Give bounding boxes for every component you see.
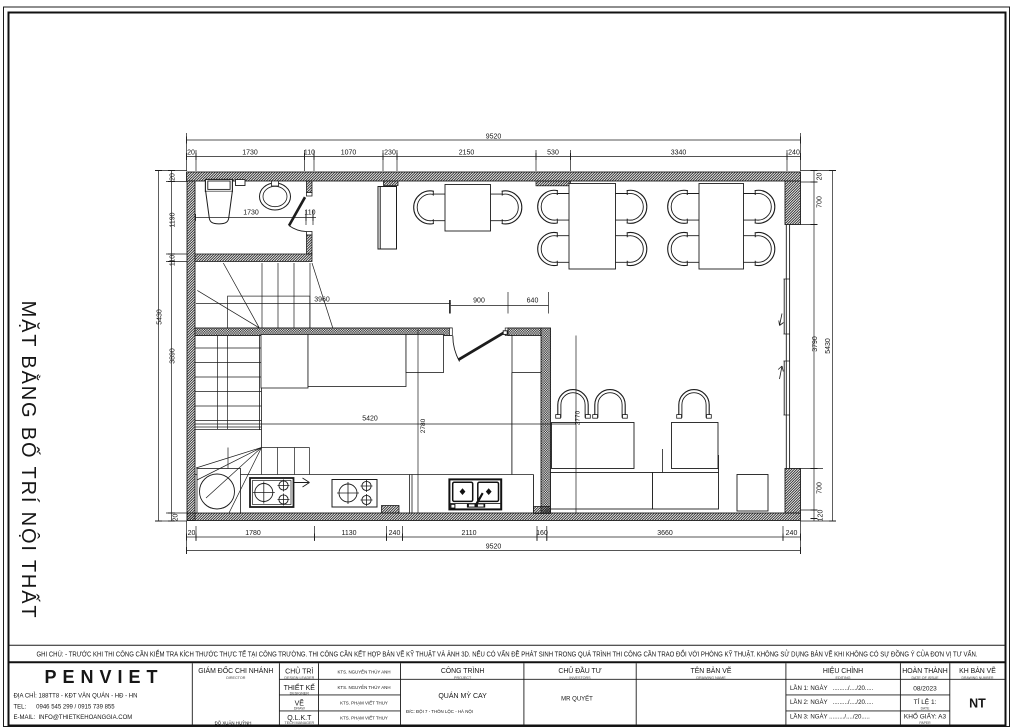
svg-text:160: 160 [536, 530, 548, 537]
svg-text:EDITING: EDITING [836, 676, 851, 680]
svg-text:DATE OF ISSUE: DATE OF ISSUE [911, 676, 939, 680]
svg-text:20: 20 [170, 173, 177, 181]
svg-text:20: 20 [817, 173, 824, 181]
svg-text:110: 110 [304, 210, 315, 217]
svg-text:2780: 2780 [420, 418, 427, 433]
svg-text:TÊN BẢN VẼ: TÊN BẢN VẼ [691, 666, 732, 675]
svg-text:9520: 9520 [486, 544, 502, 551]
svg-text:QUÁN MỲ CAY: QUÁN MỲ CAY [438, 691, 487, 700]
svg-text:1190: 1190 [170, 212, 177, 227]
svg-text:3960: 3960 [314, 297, 330, 304]
svg-text:PAPER: PAPER [919, 721, 931, 725]
svg-text:DESIGNER: DESIGNER [290, 692, 310, 696]
svg-text:MR QUYẾT: MR QUYẾT [561, 696, 593, 703]
svg-text:700: 700 [817, 196, 824, 208]
svg-text:HIỆU CHỈNH: HIỆU CHỈNH [823, 666, 863, 675]
svg-text:ĐỖ XUÂN HUỶNH: ĐỖ XUÂN HUỶNH [215, 721, 252, 726]
svg-text:1070: 1070 [341, 150, 357, 157]
svg-text:PROJECT: PROJECT [454, 676, 472, 680]
svg-text:1780: 1780 [245, 530, 261, 537]
svg-text:Đ/C: ĐỘI 7 - THÔN LỘC - HÀ NỘI: Đ/C: ĐỘI 7 - THÔN LỘC - HÀ NỘI [406, 709, 473, 714]
svg-text:DESIGN LEADER: DESIGN LEADER [284, 676, 314, 680]
svg-text:3890: 3890 [170, 348, 177, 364]
svg-text:DATE: DATE [921, 706, 931, 710]
svg-text:5420: 5420 [362, 416, 378, 423]
svg-text:700: 700 [817, 482, 824, 494]
svg-text:120: 120 [818, 510, 825, 522]
svg-text:240: 240 [788, 150, 800, 157]
svg-text:ĐỊA CHỈ: 188TT8 - KĐT VĂN QUÁN: ĐỊA CHỈ: 188TT8 - KĐT VĂN QUÁN - HĐ - HN [14, 693, 138, 700]
svg-text:110: 110 [170, 255, 177, 266]
svg-text:KH BẢN VẼ: KH BẢN VẼ [959, 666, 996, 675]
svg-text:KTS. NGUYỄN THÚY ANH: KTS. NGUYỄN THÚY ANH [337, 685, 390, 690]
svg-text:INVESTORS: INVESTORS [569, 676, 591, 680]
svg-text:2150: 2150 [459, 150, 475, 157]
svg-text:DRAW: DRAW [294, 707, 306, 711]
svg-text:2110: 2110 [461, 530, 476, 537]
svg-text:3660: 3660 [657, 530, 673, 537]
svg-text:HOÀN THÀNH: HOÀN THÀNH [902, 666, 947, 675]
svg-text:GIÁM ĐỐC CHI NHÁNH: GIÁM ĐỐC CHI NHÁNH [198, 665, 273, 675]
svg-text:08/2023: 08/2023 [913, 685, 937, 692]
svg-text:2770: 2770 [575, 410, 582, 425]
svg-text:110: 110 [304, 150, 315, 157]
svg-text:THIẾT KẾ: THIẾT KẾ [284, 682, 316, 692]
svg-text:PENVIET: PENVIET [44, 667, 163, 687]
svg-text:TỈ LỆ 1:: TỈ LỆ 1: [914, 697, 937, 706]
svg-text:1130: 1130 [341, 530, 356, 537]
svg-text:TECH MANAGER: TECH MANAGER [284, 721, 314, 725]
svg-text:TEL: 0946 545 299 / 0915: TEL: 0946 545 299 / 0915 739 855 [14, 705, 116, 711]
svg-text:LẦN 3: NGÀY ........./..../20.: LẦN 3: NGÀY ........./..../20..... [790, 714, 870, 721]
svg-text:1730: 1730 [243, 210, 259, 217]
svg-text:LẦN 2: NGÀY ........./..../2: LẦN 2: NGÀY ........./..../20..... [790, 699, 874, 706]
svg-text:CHỦ TRÌ: CHỦ TRÌ [285, 667, 313, 676]
svg-text:GHI CHÚ: - TRƯỚC KHI THI CÔNG: GHI CHÚ: - TRƯỚC KHI THI CÔNG CẦN KIỂM T… [37, 649, 978, 659]
svg-text:530: 530 [547, 150, 559, 157]
svg-text:KTS. PHẠM VIẾT THUY: KTS. PHẠM VIẾT THUY [340, 716, 388, 721]
svg-text:240: 240 [786, 530, 798, 537]
svg-text:230: 230 [384, 150, 396, 157]
svg-text:KTS. NGUYỄN THÚY ANH: KTS. NGUYỄN THÚY ANH [337, 669, 390, 674]
svg-text:900: 900 [473, 298, 485, 305]
svg-text:MẶT BẰNG BỐ TRÍ NỘI THẤT: MẶT BẰNG BỐ TRÍ NỘI THẤT [17, 301, 41, 620]
svg-text:NT: NT [969, 697, 986, 711]
svg-text:5430: 5430 [157, 309, 164, 325]
svg-text:DIRECTOR: DIRECTOR [226, 676, 246, 680]
svg-text:DRAWING NUMBER: DRAWING NUMBER [962, 676, 994, 680]
svg-text:3790: 3790 [812, 336, 819, 352]
svg-text:640: 640 [527, 298, 539, 305]
svg-text:3340: 3340 [671, 150, 687, 157]
svg-text:20: 20 [188, 530, 196, 537]
svg-text:240: 240 [389, 530, 401, 537]
svg-text:9520: 9520 [486, 134, 502, 141]
svg-text:CÔNG TRÌNH: CÔNG TRÌNH [441, 666, 485, 675]
svg-text:KTS. PHẠM VIẾT THUY: KTS. PHẠM VIẾT THUY [340, 701, 388, 706]
svg-text:KHỔ GIẤY: A3: KHỔ GIẤY: A3 [904, 710, 947, 720]
svg-text:1730: 1730 [242, 150, 258, 157]
svg-text:20: 20 [187, 150, 195, 157]
svg-text:CHỦ ĐẦU TƯ: CHỦ ĐẦU TƯ [558, 665, 601, 675]
svg-text:DRAWING NAME: DRAWING NAME [696, 676, 726, 680]
svg-text:E-MAIL: INFO@THIETKEHOANGGIA.: E-MAIL: INFO@THIETKEHOANGGIA.COM [14, 715, 133, 721]
svg-text:5430: 5430 [825, 338, 832, 354]
svg-text:20: 20 [173, 514, 180, 522]
svg-text:LẦN 1: NGÀY ........./..../2: LẦN 1: NGÀY ........./..../20..... [790, 685, 874, 692]
